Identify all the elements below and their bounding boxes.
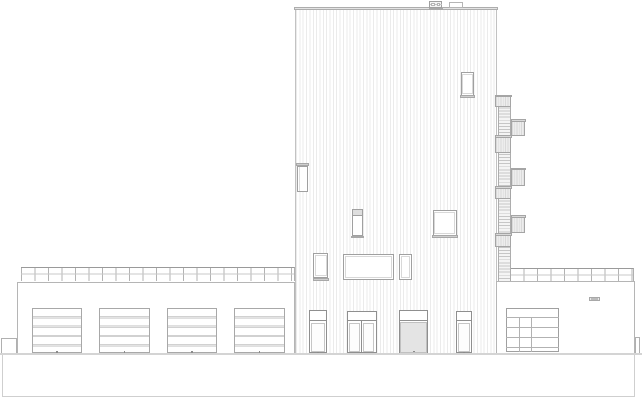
glazed-door-rail-1 xyxy=(506,327,559,328)
stair-landing-b3-cap xyxy=(511,215,526,218)
window-l1-inner xyxy=(315,255,327,276)
building-elevation-drawing xyxy=(0,0,644,400)
garage-door-4 xyxy=(234,308,284,353)
stair-landing-a4-cap xyxy=(495,233,512,236)
window-mid-small-sill xyxy=(351,236,364,239)
right-stub-wall xyxy=(635,337,640,353)
glazed-door-rail-2 xyxy=(506,337,559,338)
tower-parapet-cap xyxy=(294,7,498,11)
entry-door-2-leaf-right xyxy=(363,323,374,352)
roof-unit-base xyxy=(429,8,444,10)
entry-door-3-leaf xyxy=(458,323,470,352)
right-wing-roof-railing xyxy=(510,268,634,281)
stair-landing-b1-cap xyxy=(511,119,526,122)
window-upper-sill xyxy=(460,95,475,98)
service-door-panel xyxy=(400,322,427,353)
basement-outline-left xyxy=(2,355,3,397)
garage-door-1 xyxy=(32,308,82,353)
window-l3-inner xyxy=(401,256,410,278)
roof-unit-box-2 xyxy=(437,3,440,6)
entry-door-1-leaf xyxy=(311,323,325,352)
window-mid-square-sill xyxy=(432,235,458,238)
stair-landing-a2-cap xyxy=(495,135,512,138)
left-wing-roof-railing xyxy=(21,267,296,281)
window-upper-inner xyxy=(462,74,473,94)
stair-landing-b2 xyxy=(511,168,525,186)
left-ramp-wall xyxy=(1,338,18,353)
wall-vent-inner xyxy=(591,298,597,300)
stair-landing-a1-cap xyxy=(495,95,512,98)
glazed-door-mullion-2 xyxy=(531,317,532,352)
window-mid-small-band xyxy=(353,210,363,216)
garage-door-3 xyxy=(167,308,217,353)
window-mid-square-inner xyxy=(434,212,455,234)
entry-door-2-mullion xyxy=(361,321,362,353)
side-door-jamb xyxy=(299,167,301,190)
stair-landing-a2 xyxy=(495,135,511,153)
window-wide-inner xyxy=(345,256,393,278)
stair-landing-a3-cap xyxy=(495,186,512,189)
glazed-door-rail-3 xyxy=(506,347,559,348)
glazed-door-transom-line xyxy=(506,317,559,318)
ground-line xyxy=(0,353,642,355)
entry-door-1-transom xyxy=(309,320,326,321)
tower-facade xyxy=(295,10,498,354)
garage-door-2 xyxy=(99,308,149,353)
glazed-door xyxy=(506,308,559,353)
stair-landing-b2-cap xyxy=(511,168,526,171)
glazed-door-mullion-1 xyxy=(519,317,520,352)
stair-landing-b3 xyxy=(511,215,525,233)
entry-door-3-transom xyxy=(456,320,472,321)
window-l1-sill xyxy=(313,278,329,281)
roof-box xyxy=(449,2,464,8)
roof-unit-box-1 xyxy=(431,3,435,6)
basement-outline-right xyxy=(634,355,635,397)
basement-outline-bottom xyxy=(2,396,635,397)
entry-door-2-leaf-left xyxy=(349,323,360,352)
